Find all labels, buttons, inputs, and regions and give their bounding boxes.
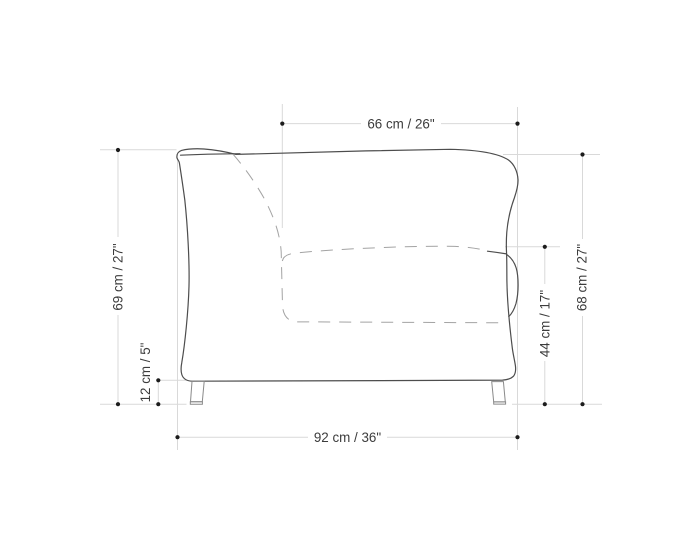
svg-text:92 cm / 36": 92 cm / 36" (314, 430, 382, 445)
svg-text:44 cm / 17": 44 cm / 17" (537, 290, 552, 358)
svg-text:69 cm / 27": 69 cm / 27" (111, 243, 126, 311)
svg-text:66 cm / 26": 66 cm / 26" (367, 116, 435, 131)
svg-text:68 cm / 27": 68 cm / 27" (574, 244, 589, 312)
svg-text:12 cm / 5": 12 cm / 5" (138, 342, 153, 402)
